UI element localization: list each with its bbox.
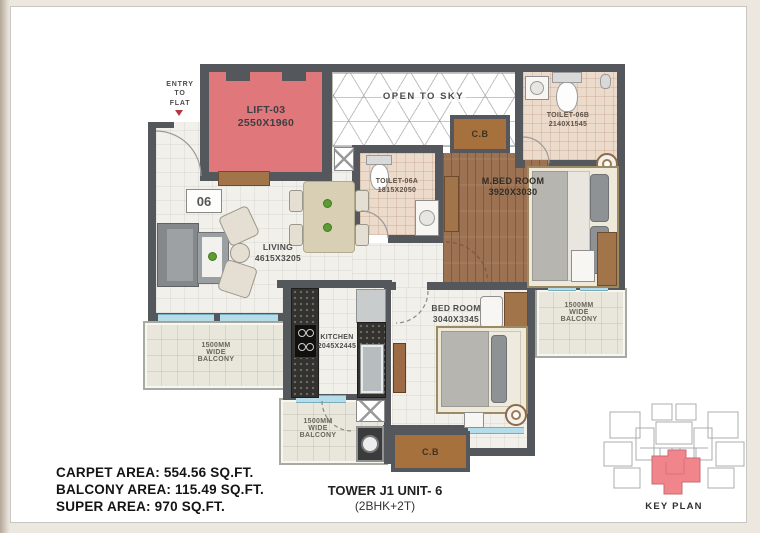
balcony-left-label: 1500MM WIDE BALCONY bbox=[178, 342, 254, 363]
lift-dims: 2550X1960 bbox=[214, 117, 318, 130]
carpet-area-text: CARPET AREA: 554.56 SQ.FT. bbox=[56, 464, 316, 481]
entry-label: ENTRY TO FLAT bbox=[155, 80, 205, 108]
floor-plan: C.B C.B 06 bbox=[0, 0, 760, 533]
tower-unit-title: TOWER J1 UNIT- 6 bbox=[310, 483, 460, 498]
wall-bedroom-bottom-b bbox=[460, 448, 535, 456]
window-living-2 bbox=[220, 314, 278, 322]
living-label: LIVING 4615X3205 bbox=[247, 242, 309, 263]
cupboard-top: C.B bbox=[450, 115, 510, 153]
wall-entry-stub bbox=[148, 122, 174, 128]
living-dims: 4615X3205 bbox=[247, 253, 309, 264]
wall-left-outer bbox=[148, 122, 156, 321]
window-living-1 bbox=[158, 314, 214, 322]
dining-chair-1 bbox=[289, 190, 303, 212]
toilet06b-label: TOILET-06B 2140X1545 bbox=[523, 112, 613, 130]
master-wardrobe bbox=[597, 232, 617, 286]
balcony-right-floor bbox=[535, 288, 627, 358]
toilet06a-washbasin bbox=[415, 200, 439, 236]
washing-machine bbox=[356, 426, 384, 462]
key-plan-drawing bbox=[600, 398, 748, 500]
lift-door-jamb-left bbox=[226, 72, 250, 81]
tv-console bbox=[218, 171, 270, 186]
master-bedroom-name: M.BED ROOM bbox=[458, 176, 568, 187]
dining-chair-4 bbox=[355, 224, 369, 246]
cupboard-bottom-label: C.B bbox=[422, 447, 439, 457]
open-to-sky-label: OPEN TO SKY bbox=[381, 91, 466, 102]
kitchen-label: KITCHEN 2045X2445 bbox=[312, 334, 362, 352]
bedroom-name: BED ROOM bbox=[416, 303, 496, 314]
living-name: LIVING bbox=[247, 242, 309, 253]
entry-arrow-icon bbox=[175, 110, 183, 116]
bedroom-bed bbox=[436, 326, 528, 414]
lift-label: LIFT-03 2550X1960 bbox=[214, 104, 318, 130]
balcony-right-label: 1500MM WIDE BALCONY bbox=[545, 302, 613, 323]
toilet06b-washbasin bbox=[525, 76, 549, 100]
toilet06b-name: TOILET-06B bbox=[523, 112, 613, 121]
area-summary: CARPET AREA: 554.56 SQ.FT. BALCONY AREA:… bbox=[56, 464, 316, 515]
bedroom-dims: 3040X3345 bbox=[416, 314, 496, 325]
key-plan-label: KEY PLAN bbox=[618, 501, 730, 512]
balcony-area-text: BALCONY AREA: 115.49 SQ.FT. bbox=[56, 481, 316, 498]
shaft-hatch-bottom bbox=[356, 400, 385, 422]
master-bedroom-dims: 3920X3030 bbox=[458, 187, 568, 198]
cupboard-bottom: C.B bbox=[391, 431, 470, 472]
wall-top bbox=[200, 64, 625, 72]
fridge bbox=[356, 289, 386, 323]
toilet06b-wc bbox=[556, 82, 578, 112]
unit-number: 06 bbox=[197, 194, 211, 209]
master-nightstand bbox=[571, 250, 595, 282]
kitchen-dims: 2045X2445 bbox=[312, 343, 362, 352]
unit-config: (2BHK+2T) bbox=[310, 499, 460, 513]
unit-number-badge: 06 bbox=[186, 189, 222, 213]
wall-kitchen-left bbox=[283, 280, 291, 400]
wall-toilet06a-bottom-b bbox=[388, 235, 443, 243]
floor-plan-page: C.B C.B 06 bbox=[0, 0, 760, 533]
window-bedroom-bottom bbox=[468, 427, 524, 434]
toilet06a-label: TOILET-06A 1815X2050 bbox=[358, 178, 436, 196]
super-area-text: SUPER AREA: 970 SQ.FT. bbox=[56, 498, 316, 515]
wall-toilet06a-top bbox=[352, 145, 443, 153]
toilet06b-dims: 2140X1545 bbox=[523, 121, 613, 130]
bedroom-stool bbox=[464, 412, 484, 428]
shaft-hatch-top bbox=[334, 147, 354, 171]
toilet06a-dims: 1815X2050 bbox=[358, 187, 436, 196]
wall-toilet06b-bottom-a bbox=[515, 160, 525, 168]
toilet06a-name: TOILET-06A bbox=[358, 178, 436, 187]
wall-toilet06b-left bbox=[515, 64, 523, 168]
bedroom-door-leaf bbox=[393, 343, 406, 393]
cupboard-top-label: C.B bbox=[472, 129, 489, 139]
bedroom-label: BED ROOM 3040X3345 bbox=[416, 303, 496, 324]
toilet06b-tap bbox=[600, 74, 611, 89]
pillow bbox=[590, 174, 609, 222]
kitchen-sink bbox=[361, 345, 383, 393]
key-plan-highlighted-unit bbox=[652, 450, 700, 494]
master-bedroom-label: M.BED ROOM 3920X3030 bbox=[458, 176, 568, 199]
kitchen-name: KITCHEN bbox=[312, 334, 362, 343]
lift-door-jamb-right bbox=[282, 72, 306, 81]
pillow bbox=[491, 335, 507, 403]
wall-lift-right bbox=[322, 64, 332, 181]
open-to-sky-label-wrap: OPEN TO SKY bbox=[332, 86, 515, 104]
master-dresser bbox=[444, 176, 459, 232]
ceiling-fan-bedroom-icon bbox=[505, 404, 527, 426]
sofa bbox=[157, 223, 199, 287]
wall-bedroom-right bbox=[527, 282, 535, 456]
lift-name: LIFT-03 bbox=[214, 104, 318, 117]
wall-kitchen-top bbox=[277, 280, 392, 288]
dining-table bbox=[303, 181, 355, 253]
balcony-bottom-label: 1500MM WIDE BALCONY bbox=[288, 418, 348, 439]
